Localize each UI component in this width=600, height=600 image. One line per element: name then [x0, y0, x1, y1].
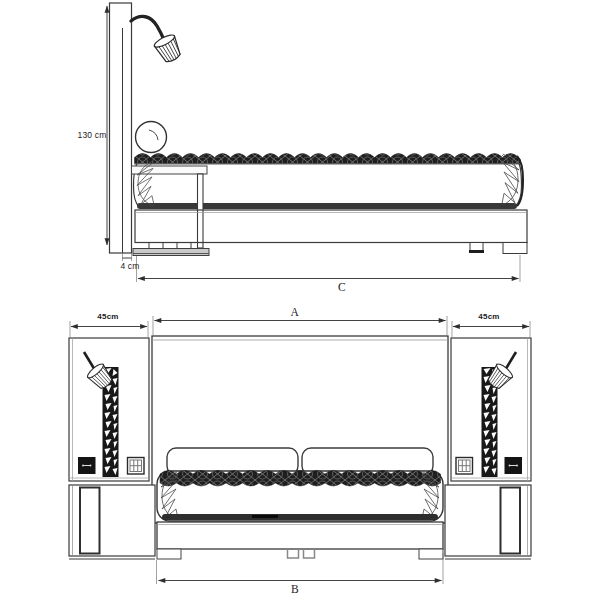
- right-panel-width-label: 45cm: [478, 312, 499, 321]
- outlet-grid-right: [456, 458, 473, 475]
- base-foot-center-2: [304, 549, 315, 558]
- front-bed-base: [157, 522, 443, 559]
- nightstand-plinth: [133, 249, 209, 256]
- headboard-height-label: 130 cm: [77, 130, 106, 140]
- dimension-line-left-panel: [70, 321, 148, 337]
- dimension-line-bed-length: [137, 255, 521, 282]
- left-panel-width-label: 45cm: [97, 312, 118, 321]
- dimension-panel-thickness: [123, 253, 132, 261]
- bed-length-label: C: [338, 281, 346, 293]
- cabinet-door-left: [80, 488, 100, 554]
- bed-width-label: B: [291, 583, 299, 595]
- panel-thickness-label: 4 cm: [120, 261, 139, 271]
- side-reading-lamp: [131, 16, 184, 65]
- outlet-grid-left: [128, 458, 145, 475]
- side-bed-base: [133, 210, 527, 256]
- bed-line-art: [0, 0, 600, 600]
- front-mattress: [157, 471, 443, 522]
- nightstand-cabinet-right: [445, 485, 531, 559]
- lamp-shade: [153, 33, 184, 65]
- base-leg-right: [419, 549, 443, 559]
- nightstand-cabinet-left: [69, 485, 155, 559]
- nightstand-support-panel: [198, 174, 204, 248]
- side-bolster-pillow: [136, 122, 167, 153]
- mattress-tufted-band: [160, 471, 441, 487]
- side-view: [107, 3, 527, 282]
- side-mattress: [134, 154, 524, 210]
- cabinet-door-right: [501, 488, 521, 554]
- bed-foot-block: [503, 243, 527, 254]
- lamp-flex-arm: [131, 16, 164, 40]
- mattress-tufted-top: [135, 154, 521, 164]
- outlet-dark-left: [78, 457, 96, 474]
- base-leg-left: [157, 549, 181, 559]
- headboard-width-label: A: [291, 306, 300, 318]
- mattress-bottom-seam: [137, 203, 517, 209]
- dimension-line-headboard-width: [153, 316, 447, 335]
- bed-foot-leg: [470, 243, 483, 252]
- outlet-dark-right: [505, 457, 523, 474]
- side-headboard-panel: [110, 3, 132, 253]
- bed-technical-drawing: 130 cm 4 cm C A 45cm 45cm B: [0, 0, 600, 600]
- dimension-line-bed-width: [157, 553, 444, 584]
- front-view: [69, 316, 531, 584]
- dimension-line-right-panel: [452, 321, 530, 337]
- base-foot-center-1: [288, 549, 299, 558]
